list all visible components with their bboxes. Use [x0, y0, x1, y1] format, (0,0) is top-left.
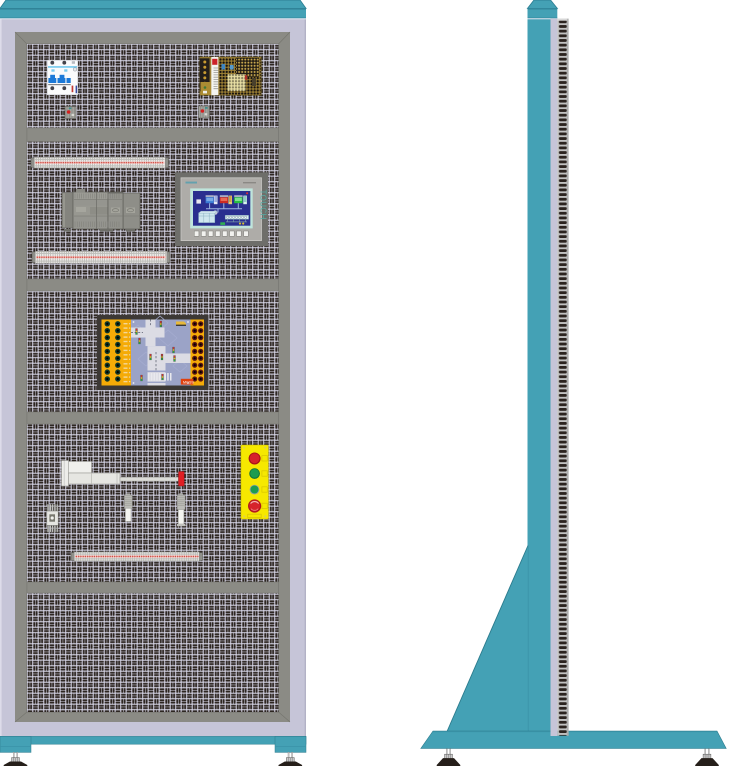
svg-text:TOUCH: TOUCH — [259, 190, 268, 220]
svg-text:MCGS: MCGS — [183, 380, 194, 384]
